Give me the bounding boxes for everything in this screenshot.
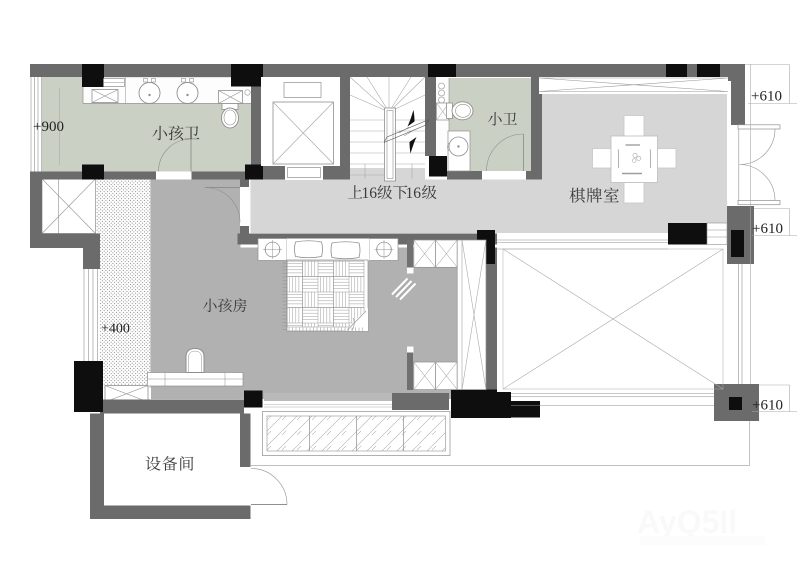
svg-text:AyQ5Il: AyQ5Il [637, 504, 737, 540]
svg-text:+610: +610 [752, 398, 783, 414]
svg-text:16: 16 [362, 185, 378, 202]
svg-text:+900: +900 [33, 119, 64, 135]
svg-text:+610: +610 [752, 221, 783, 237]
svg-text:16: 16 [406, 185, 422, 202]
svg-text:+400: +400 [101, 322, 130, 337]
svg-text:+610: +610 [751, 89, 782, 105]
